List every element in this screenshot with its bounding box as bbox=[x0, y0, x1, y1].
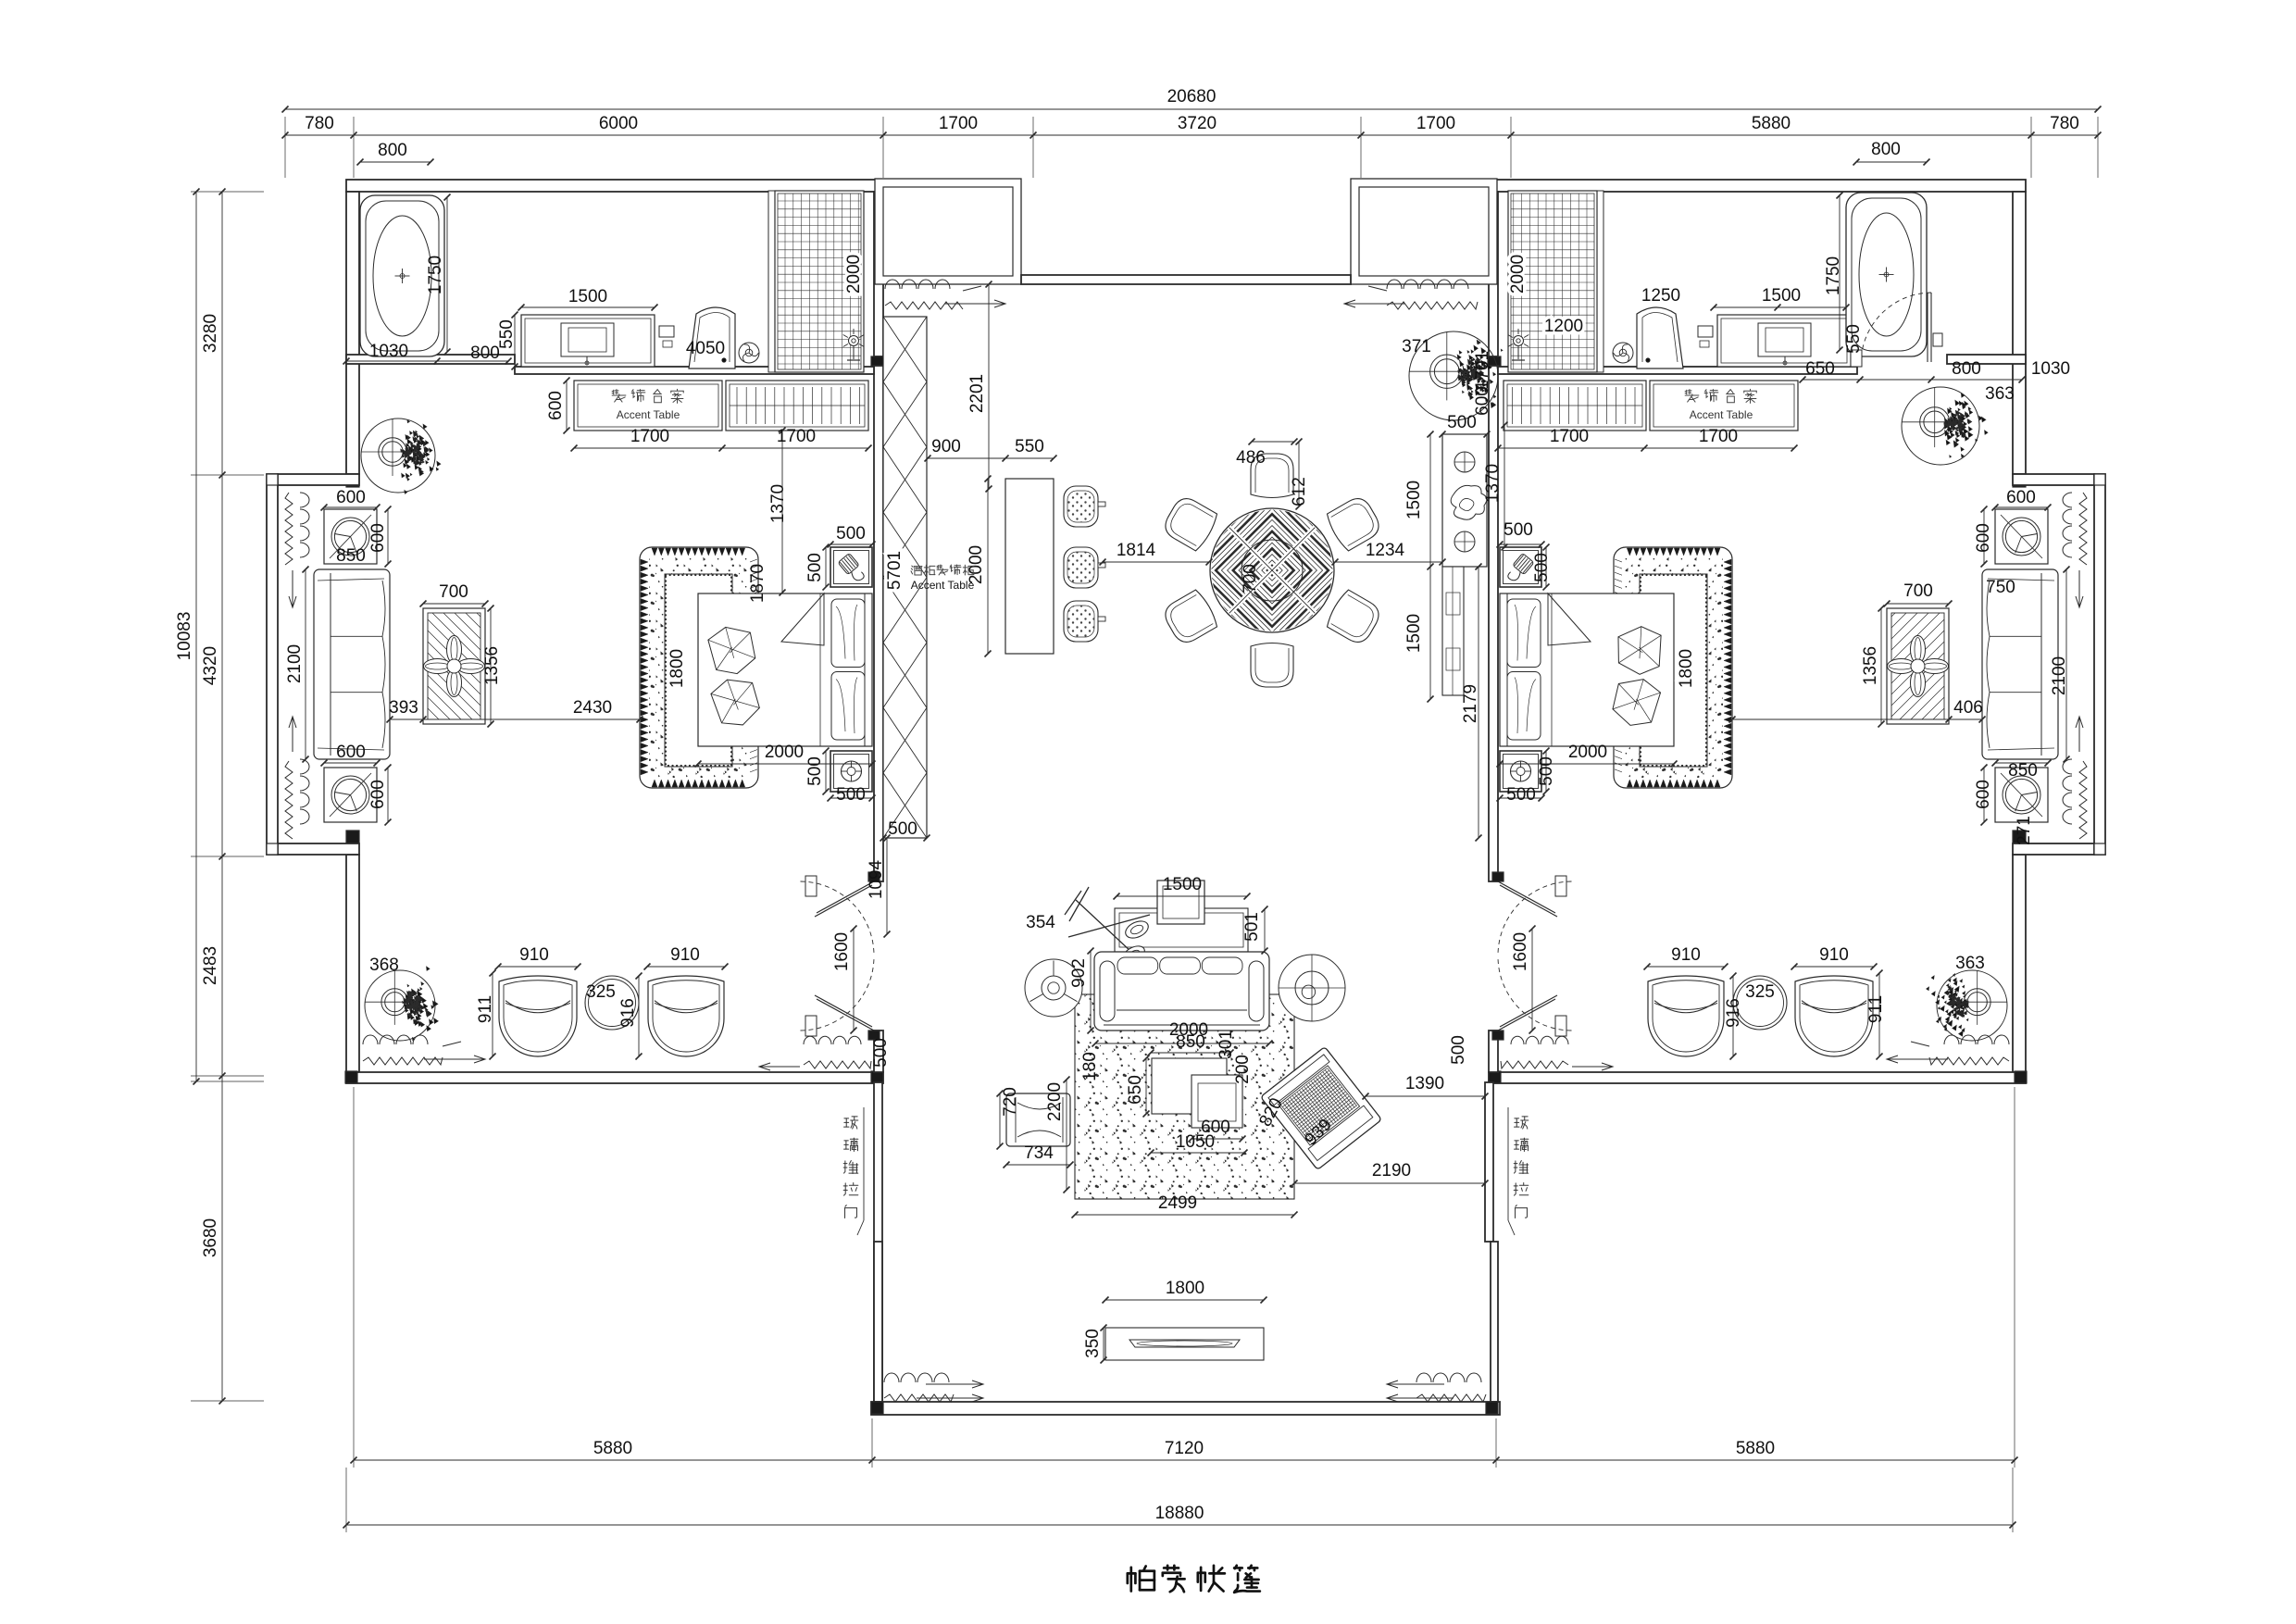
svg-text:650: 650 bbox=[1126, 1075, 1145, 1105]
svg-text:1700: 1700 bbox=[777, 427, 816, 446]
svg-text:500: 500 bbox=[1537, 756, 1556, 786]
svg-text:600: 600 bbox=[1974, 523, 1993, 553]
svg-text:600: 600 bbox=[368, 780, 388, 809]
svg-text:406: 406 bbox=[1953, 698, 1983, 718]
svg-text:1094: 1094 bbox=[867, 859, 886, 899]
svg-text:2201: 2201 bbox=[967, 374, 987, 413]
svg-text:18880: 18880 bbox=[1155, 1504, 1204, 1523]
svg-text:600: 600 bbox=[336, 488, 366, 507]
svg-text:393: 393 bbox=[389, 698, 418, 718]
svg-text:780: 780 bbox=[305, 114, 334, 133]
svg-text:2100: 2100 bbox=[285, 644, 305, 683]
svg-text:1030: 1030 bbox=[369, 342, 408, 361]
svg-text:2200: 2200 bbox=[1045, 1082, 1065, 1121]
svg-text:500: 500 bbox=[1532, 553, 1552, 582]
svg-text:1030: 1030 bbox=[2031, 359, 2070, 379]
svg-text:600: 600 bbox=[1473, 386, 1492, 416]
svg-text:1800: 1800 bbox=[1166, 1279, 1204, 1298]
svg-text:6000: 6000 bbox=[599, 114, 638, 133]
svg-text:20680: 20680 bbox=[1167, 87, 1217, 106]
svg-text:800: 800 bbox=[1952, 359, 1981, 379]
svg-text:500: 500 bbox=[888, 819, 917, 839]
svg-text:1390: 1390 bbox=[1405, 1074, 1444, 1093]
svg-text:910: 910 bbox=[1671, 945, 1701, 965]
svg-text:3680: 3680 bbox=[201, 1218, 220, 1257]
svg-text:4050: 4050 bbox=[686, 339, 725, 358]
svg-text:916: 916 bbox=[1724, 998, 1743, 1028]
svg-text:10083: 10083 bbox=[175, 612, 194, 661]
svg-text:2190: 2190 bbox=[1372, 1161, 1411, 1181]
svg-text:1600: 1600 bbox=[832, 932, 852, 971]
svg-text:501: 501 bbox=[1242, 912, 1262, 942]
svg-text:800: 800 bbox=[378, 141, 407, 160]
svg-text:7120: 7120 bbox=[1165, 1439, 1204, 1458]
svg-text:1200: 1200 bbox=[1544, 317, 1583, 336]
svg-text:500: 500 bbox=[871, 1038, 891, 1068]
svg-text:600: 600 bbox=[2006, 488, 2036, 507]
svg-text:780: 780 bbox=[2050, 114, 2079, 133]
svg-text:1356: 1356 bbox=[1861, 646, 1880, 685]
svg-text:271: 271 bbox=[2015, 816, 2034, 845]
svg-text:734: 734 bbox=[1024, 1143, 1054, 1163]
svg-text:500: 500 bbox=[836, 524, 866, 543]
svg-text:1814: 1814 bbox=[1117, 541, 1156, 560]
svg-text:2000: 2000 bbox=[1508, 255, 1528, 294]
svg-text:650: 650 bbox=[1805, 359, 1835, 379]
svg-text:550: 550 bbox=[497, 319, 517, 349]
svg-text:600: 600 bbox=[336, 743, 366, 762]
svg-text:1370: 1370 bbox=[768, 484, 788, 523]
svg-text:550: 550 bbox=[1844, 324, 1864, 354]
svg-text:371: 371 bbox=[1402, 337, 1431, 356]
svg-text:902: 902 bbox=[1069, 958, 1089, 988]
svg-text:800: 800 bbox=[470, 344, 500, 363]
svg-text:3720: 3720 bbox=[1178, 114, 1217, 133]
svg-text:500: 500 bbox=[836, 785, 866, 805]
svg-text:2483: 2483 bbox=[201, 946, 220, 985]
svg-text:Accent Table: Accent Table bbox=[911, 579, 975, 592]
svg-text:368: 368 bbox=[369, 956, 399, 975]
svg-text:350: 350 bbox=[1083, 1329, 1103, 1358]
svg-text:4320: 4320 bbox=[201, 646, 220, 685]
svg-text:1250: 1250 bbox=[1641, 286, 1680, 306]
svg-text:1870: 1870 bbox=[748, 564, 767, 603]
svg-text:850: 850 bbox=[2008, 761, 2038, 781]
svg-text:911: 911 bbox=[476, 995, 495, 1023]
svg-text:2000: 2000 bbox=[1568, 743, 1607, 762]
svg-text:1700: 1700 bbox=[939, 114, 978, 133]
svg-text:1356: 1356 bbox=[482, 646, 502, 685]
svg-text:1500: 1500 bbox=[1163, 875, 1202, 894]
svg-text:1370: 1370 bbox=[1483, 464, 1503, 503]
svg-text:5880: 5880 bbox=[593, 1439, 632, 1458]
svg-text:500: 500 bbox=[1506, 785, 1536, 805]
svg-text:500: 500 bbox=[1449, 1035, 1468, 1065]
svg-text:363: 363 bbox=[1955, 954, 1985, 973]
svg-text:1500: 1500 bbox=[1404, 481, 1424, 519]
svg-text:1700: 1700 bbox=[1416, 114, 1455, 133]
svg-text:550: 550 bbox=[1015, 437, 1044, 456]
svg-text:700: 700 bbox=[1903, 581, 1933, 601]
svg-text:3280: 3280 bbox=[201, 314, 220, 353]
svg-text:325: 325 bbox=[586, 982, 616, 1002]
svg-text:486: 486 bbox=[1236, 448, 1266, 468]
svg-text:600: 600 bbox=[546, 391, 566, 420]
svg-text:850: 850 bbox=[336, 546, 366, 566]
svg-text:325: 325 bbox=[1745, 982, 1775, 1002]
svg-text:1800: 1800 bbox=[1677, 649, 1696, 688]
svg-text:363: 363 bbox=[1985, 384, 2015, 404]
svg-text:2000: 2000 bbox=[844, 255, 864, 294]
svg-text:600: 600 bbox=[1974, 780, 1993, 809]
svg-text:720: 720 bbox=[1001, 1087, 1020, 1117]
svg-text:600: 600 bbox=[368, 523, 388, 553]
svg-text:1750: 1750 bbox=[1824, 256, 1843, 295]
svg-text:500: 500 bbox=[1504, 520, 1533, 540]
svg-text:301: 301 bbox=[1217, 1030, 1236, 1059]
svg-text:1800: 1800 bbox=[668, 649, 687, 688]
svg-text:1500: 1500 bbox=[1762, 286, 1801, 306]
svg-text:910: 910 bbox=[670, 945, 700, 965]
svg-text:5880: 5880 bbox=[1752, 114, 1791, 133]
svg-text:1234: 1234 bbox=[1366, 541, 1405, 560]
svg-text:Accent Table: Accent Table bbox=[1690, 408, 1753, 421]
svg-text:900: 900 bbox=[931, 437, 961, 456]
svg-text:200: 200 bbox=[1233, 1055, 1253, 1084]
svg-text:2000: 2000 bbox=[765, 743, 804, 762]
svg-text:916: 916 bbox=[618, 998, 638, 1028]
svg-text:354: 354 bbox=[1026, 913, 1055, 932]
svg-text:612: 612 bbox=[1290, 477, 1309, 506]
svg-text:750: 750 bbox=[1986, 578, 2015, 597]
svg-text:1750: 1750 bbox=[426, 256, 445, 294]
svg-text:1700: 1700 bbox=[1699, 427, 1738, 446]
svg-text:2430: 2430 bbox=[573, 698, 612, 718]
svg-text:2179: 2179 bbox=[1461, 684, 1480, 723]
svg-text:Accent Table: Accent Table bbox=[617, 408, 680, 421]
svg-text:850: 850 bbox=[1176, 1032, 1205, 1052]
svg-text:1050: 1050 bbox=[1176, 1132, 1215, 1152]
svg-text:1700: 1700 bbox=[630, 427, 669, 446]
svg-text:5701: 5701 bbox=[885, 551, 905, 590]
svg-text:2100: 2100 bbox=[2050, 656, 2069, 695]
svg-text:1700: 1700 bbox=[1550, 427, 1589, 446]
svg-text:1500: 1500 bbox=[1404, 614, 1424, 653]
svg-text:700: 700 bbox=[1241, 564, 1260, 593]
svg-text:1600: 1600 bbox=[1511, 932, 1530, 971]
svg-text:180: 180 bbox=[1080, 1052, 1100, 1081]
svg-text:800: 800 bbox=[1871, 140, 1901, 159]
svg-text:911: 911 bbox=[1866, 995, 1886, 1023]
svg-text:500: 500 bbox=[805, 756, 825, 786]
svg-text:500: 500 bbox=[805, 553, 825, 582]
svg-text:5880: 5880 bbox=[1736, 1439, 1775, 1458]
svg-text:1500: 1500 bbox=[568, 287, 607, 306]
svg-text:910: 910 bbox=[1819, 945, 1849, 965]
svg-text:2499: 2499 bbox=[1158, 1193, 1197, 1213]
svg-text:910: 910 bbox=[519, 945, 549, 965]
svg-text:1701: 1701 bbox=[1473, 351, 1492, 390]
svg-text:700: 700 bbox=[439, 582, 468, 602]
